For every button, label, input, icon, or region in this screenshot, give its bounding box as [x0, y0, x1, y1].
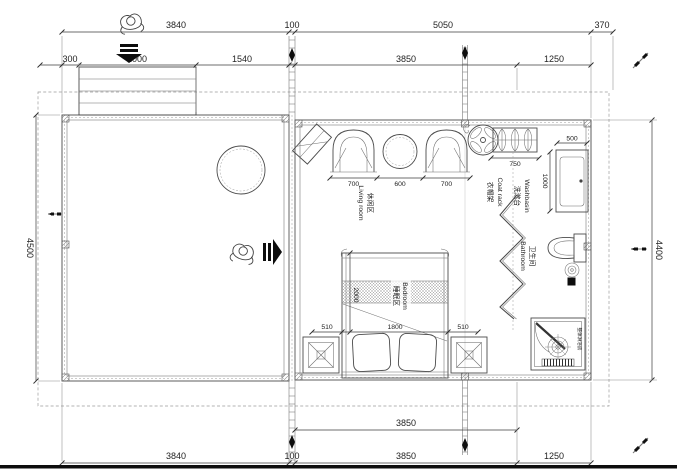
dim-label: 3840: [166, 451, 186, 461]
pillow: [398, 333, 437, 372]
dim-label: 1000: [541, 173, 548, 188]
pillow: [352, 333, 391, 372]
round-table: [217, 146, 265, 194]
bed: Bedroom 睡眠区: [341, 249, 449, 378]
dim-label: 500: [566, 136, 578, 143]
left-room: [217, 146, 282, 265]
coat-rack-label-zh: 衣帽架: [486, 182, 495, 203]
shower: 整体淋浴房: [531, 318, 585, 370]
bathroom-label-zh: 卫生间: [528, 246, 537, 267]
floor-plan-drawing: 3840 100 5050 370 300 2000 1540 3850 125…: [0, 0, 677, 473]
dim-top-row2: 300 2000 1540 3850 1250: [38, 54, 594, 112]
dim-label: 1540: [232, 54, 252, 64]
continuation-marker-icon: [289, 435, 295, 449]
tea-table: [383, 135, 417, 169]
living-room-label-zh: 休闲区: [366, 193, 375, 214]
washbasin-label-zh: 洗漱台: [513, 186, 522, 207]
toilet: [548, 234, 586, 286]
washbasin-label-en: Washbasin: [523, 179, 530, 213]
nightstand: [451, 337, 487, 373]
dim-label: 100: [284, 20, 299, 30]
living-room: 700 600 700 休闲区 Living room: [293, 124, 498, 221]
dim-bed-row: 510 1800 510: [310, 324, 481, 335]
shower-door: [536, 323, 565, 349]
entry-person-icon: [118, 13, 144, 35]
dim-label: 300: [62, 54, 77, 64]
dim-top-row1: 3840 100 5050 370: [60, 20, 616, 118]
continuation-marker-icon: [289, 48, 295, 62]
pen-icon: [633, 53, 648, 68]
dim-label: 1800: [387, 324, 402, 331]
shower-mat: [542, 359, 574, 366]
dim-label: 600: [394, 181, 406, 188]
dim-label: 5050: [433, 20, 453, 30]
bathroom-label-en: Bathroom: [519, 241, 526, 271]
floor-plan-page: 3840 100 5050 370 300 2000 1540 3850 125…: [0, 0, 677, 473]
continuation-marker-icon: [462, 438, 468, 452]
bedroom-label-zh: 睡眠区: [392, 286, 400, 307]
dim-label: 1250: [544, 54, 564, 64]
bedroom: Bedroom 睡眠区 2000 510 1800 510: [303, 249, 487, 378]
dim-label: 4500: [25, 238, 35, 258]
dim-label: 510: [321, 324, 333, 331]
shower-drain: [545, 334, 571, 360]
dim-bottom-row2: 3840 100 3850 1250: [60, 382, 594, 466]
module-joint: [289, 36, 295, 463]
dim-label: 750: [509, 161, 521, 168]
wall-diamond-decor: [293, 124, 332, 164]
dim-label: 3840: [166, 20, 186, 30]
entry-steps: [79, 67, 196, 115]
drain-swirl-icon: [565, 263, 579, 277]
dim-label: 700: [441, 181, 453, 188]
pen-icon: [631, 248, 647, 251]
dim-right: 4400: [593, 118, 664, 383]
armchair: [330, 130, 377, 172]
dim-label: 510: [457, 324, 469, 331]
pen-icon: [633, 438, 648, 453]
dim-label: 370: [594, 20, 609, 30]
coat-rack-label-en: Coat rack: [496, 177, 503, 207]
dim-label: 4400: [654, 240, 664, 260]
dim-label: 100: [284, 451, 299, 461]
armchair: [423, 130, 470, 172]
wall-columns: [62, 115, 591, 381]
dim-left: 4500: [25, 113, 60, 384]
bedroom-label-en: Bedroom: [401, 282, 408, 310]
dim-bottom-row1: 3850: [293, 418, 520, 433]
nightstand: [303, 337, 339, 373]
shower-label-zh: 整体淋浴房: [576, 328, 583, 351]
dim-label: 1250: [544, 451, 564, 461]
tap-icon: [579, 179, 582, 182]
dim-label: 3850: [396, 418, 416, 428]
page-bottom-edge: [0, 465, 677, 469]
pen-icon: [48, 213, 62, 216]
dim-living: 700 600 700: [328, 176, 473, 189]
dim-label: 2000: [352, 287, 359, 302]
washbasin: 500 1000 Washbasin 洗漱台: [513, 136, 590, 214]
dim-label: 3850: [396, 54, 416, 64]
living-room-label-en: Living room: [357, 185, 364, 220]
left-module-walls: [62, 115, 289, 381]
interior-arrow-icon: [263, 239, 282, 265]
floor-drain-icon: [568, 278, 576, 286]
interior-person-icon: [229, 242, 255, 265]
dim-label: 3850: [396, 451, 416, 461]
